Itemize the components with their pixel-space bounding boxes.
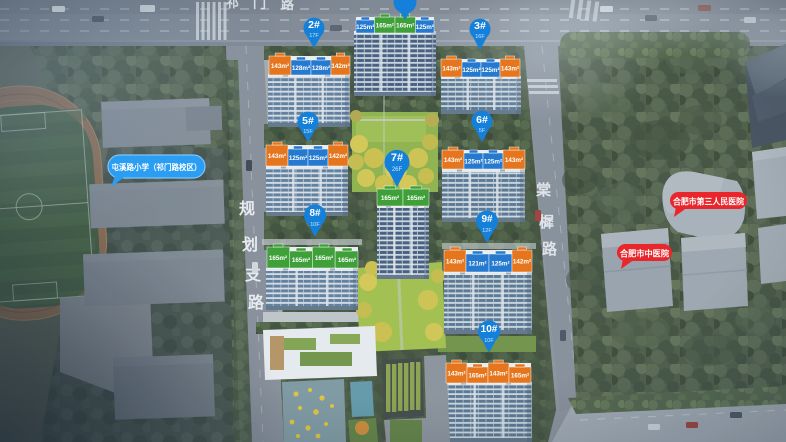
svg-text:165m²: 165m²: [338, 257, 356, 264]
svg-text:10#: 10#: [481, 324, 498, 335]
svg-text:15F: 15F: [303, 129, 313, 135]
svg-text:26F: 26F: [392, 167, 403, 173]
svg-text:2#: 2#: [308, 19, 320, 31]
svg-text:165m²: 165m²: [269, 255, 287, 262]
svg-text:125m²: 125m²: [416, 24, 434, 31]
svg-text:9#: 9#: [481, 214, 493, 225]
svg-text:165m²: 165m²: [292, 257, 310, 264]
svg-text:7#: 7#: [391, 152, 403, 164]
svg-text:10F: 10F: [310, 222, 320, 228]
svg-text:143m²: 143m²: [446, 259, 464, 266]
svg-text:142m²: 142m²: [513, 259, 531, 266]
svg-text:16F: 16F: [475, 34, 485, 40]
svg-text:合肥市中医院: 合肥市中医院: [619, 249, 669, 259]
svg-text:合肥市第三人民医院: 合肥市第三人民医院: [672, 197, 744, 207]
svg-text:143m²: 143m²: [501, 66, 519, 73]
svg-text:12F: 12F: [482, 228, 492, 234]
svg-text:165m²: 165m²: [511, 373, 529, 380]
svg-text:143m²: 143m²: [505, 157, 523, 164]
svg-text:165m²: 165m²: [407, 195, 425, 202]
svg-text:8#: 8#: [309, 208, 321, 219]
svg-text:128m²: 128m²: [312, 65, 330, 72]
svg-text:143m²: 143m²: [268, 153, 286, 160]
svg-text:125m²: 125m²: [464, 159, 482, 166]
svg-text:142m²: 142m²: [331, 63, 349, 70]
svg-text:125m²: 125m²: [356, 24, 374, 31]
svg-text:125m²: 125m²: [462, 67, 480, 74]
svg-text:125m²: 125m²: [481, 67, 499, 74]
svg-text:165m²: 165m²: [396, 23, 414, 30]
svg-text:121m²: 121m²: [468, 261, 486, 268]
svg-text:5F: 5F: [479, 128, 486, 134]
svg-text:10F: 10F: [484, 338, 494, 344]
svg-text:143m²: 143m²: [447, 371, 465, 378]
svg-text:143m²: 143m²: [271, 63, 289, 70]
svg-text:165m²: 165m²: [376, 23, 394, 30]
svg-text:143m²: 143m²: [442, 66, 460, 73]
svg-text:屯溪路小学（祁门路校区）: 屯溪路小学（祁门路校区）: [112, 162, 202, 172]
svg-text:125m²: 125m²: [289, 155, 307, 162]
svg-text:128m²: 128m²: [292, 65, 310, 72]
svg-text:3#: 3#: [474, 20, 486, 32]
svg-text:165m²: 165m²: [468, 373, 486, 380]
svg-text:143m²: 143m²: [489, 371, 507, 378]
svg-text:143m²: 143m²: [444, 157, 462, 164]
svg-text:125m²: 125m²: [309, 155, 327, 162]
svg-text:5#: 5#: [302, 115, 314, 127]
svg-text:6#: 6#: [476, 114, 488, 126]
svg-text:17F: 17F: [309, 33, 319, 39]
svg-text:125m²: 125m²: [491, 261, 509, 268]
svg-text:142m²: 142m²: [329, 153, 347, 160]
svg-text:165m²: 165m²: [315, 255, 333, 262]
svg-text:165m²: 165m²: [381, 195, 399, 202]
svg-text:125m²: 125m²: [484, 159, 502, 166]
